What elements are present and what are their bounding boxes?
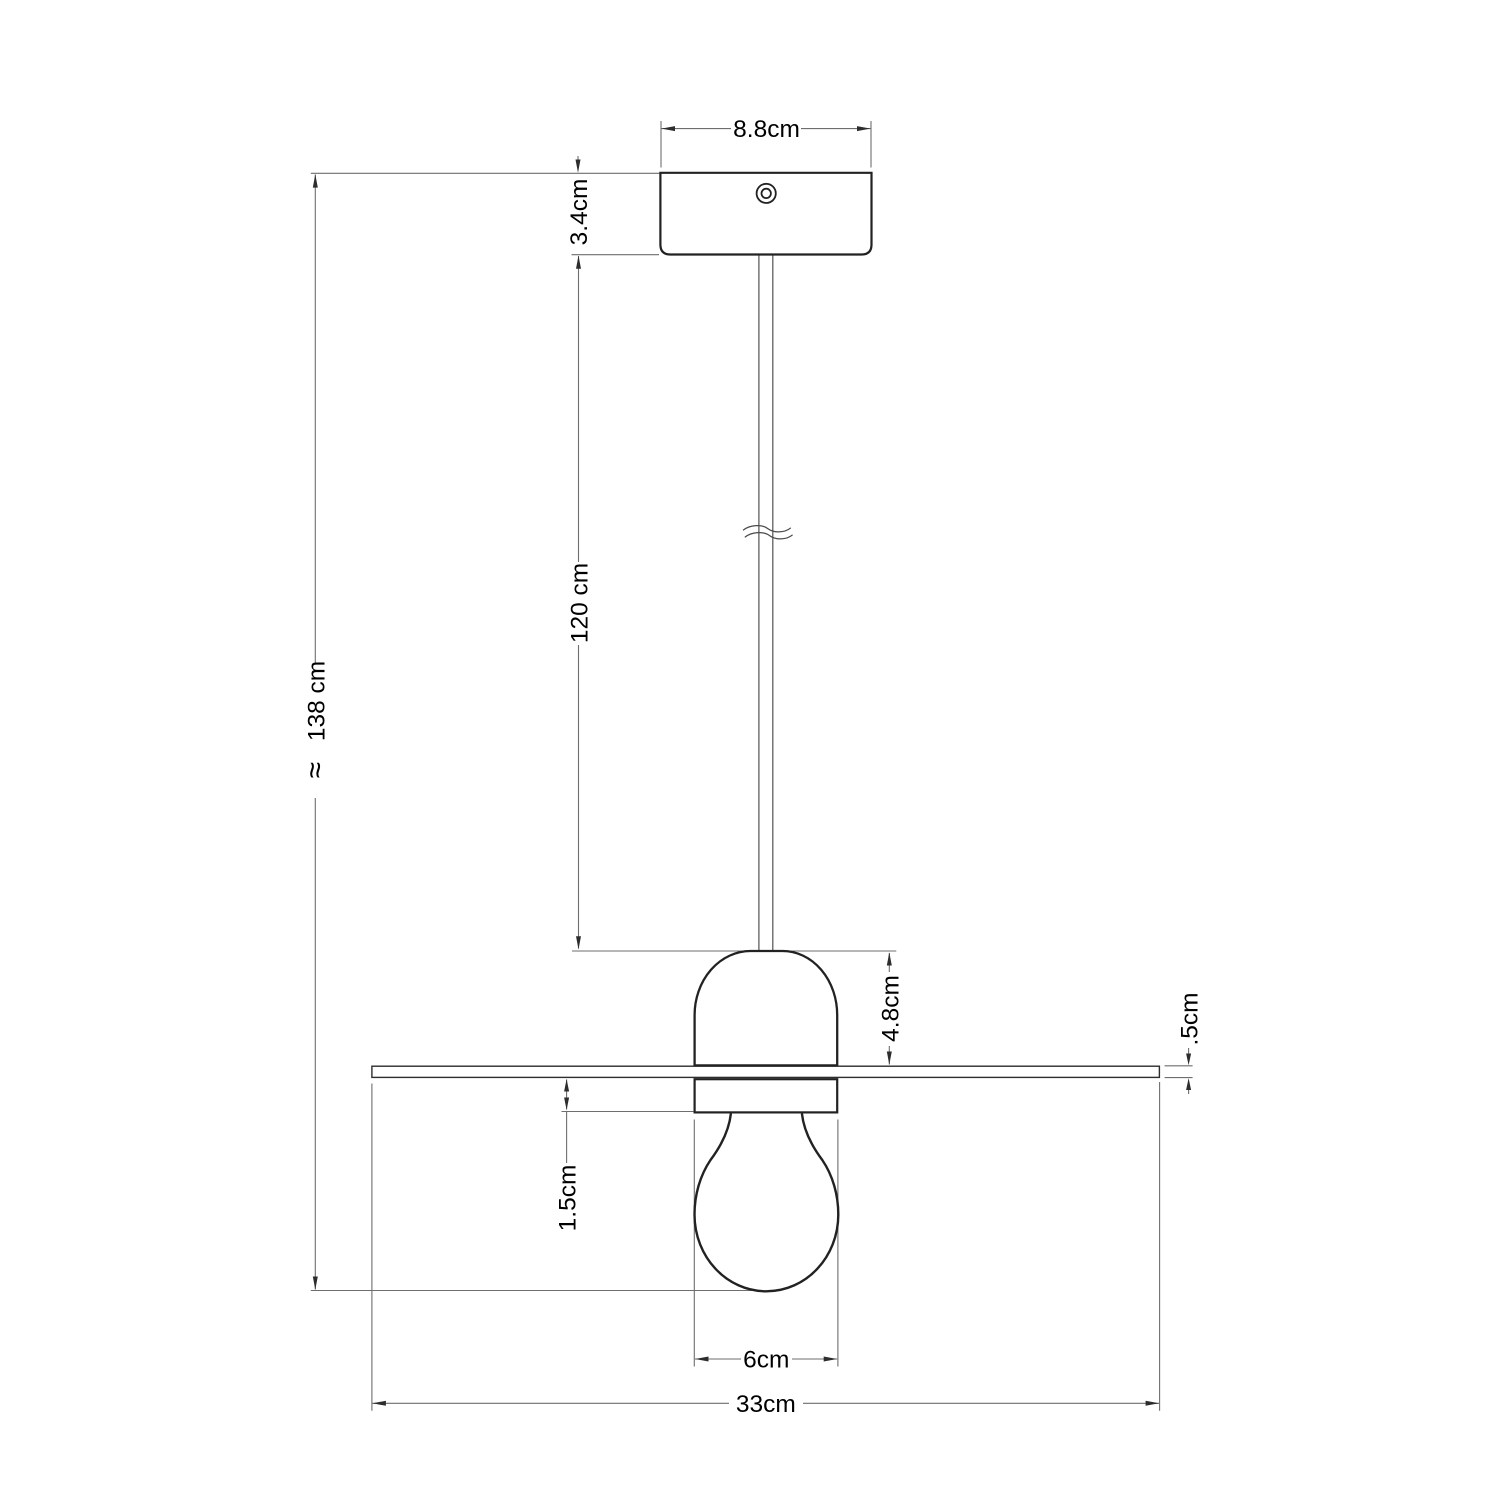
svg-text:8.8cm: 8.8cm	[733, 116, 800, 143]
svg-text:138 cm: 138 cm	[303, 661, 330, 741]
svg-text:1.5cm: 1.5cm	[555, 1165, 582, 1232]
svg-text:120 cm: 120 cm	[567, 563, 594, 643]
svg-text:.5cm: .5cm	[1177, 992, 1204, 1045]
svg-text:6cm: 6cm	[743, 1347, 789, 1374]
svg-text:≈: ≈	[299, 762, 332, 778]
svg-text:4.8cm: 4.8cm	[877, 975, 904, 1042]
svg-text:3.4cm: 3.4cm	[566, 179, 593, 246]
svg-text:33cm: 33cm	[736, 1391, 796, 1418]
